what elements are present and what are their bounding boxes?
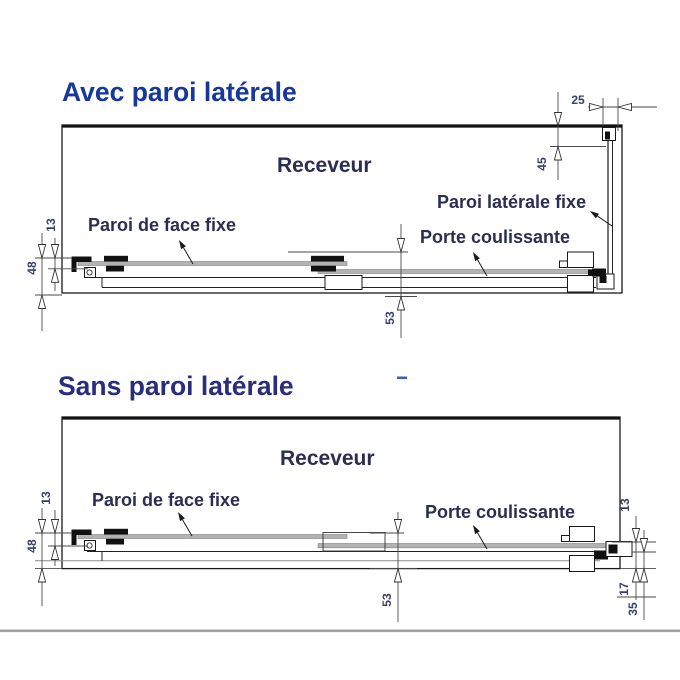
dim-wall-gap: 13: [44, 218, 58, 232]
tray-label: Receveur: [277, 154, 372, 177]
side-panel-label: Paroi latérale fixe: [437, 192, 586, 212]
front-panel-label: Paroi de face fixe: [92, 490, 240, 510]
dim-front-depth: 53: [380, 593, 394, 607]
page-root: Avec paroi latérale Receveur: [0, 0, 680, 680]
dim-side-inset: 45: [535, 157, 549, 171]
diagram-title-avec: Avec paroi latérale: [62, 77, 297, 107]
dim-wall-gap: 13: [39, 491, 53, 505]
dim-front-depth: 53: [383, 311, 397, 325]
dim-right-gap: 13: [618, 498, 632, 512]
diagram-title-sans: Sans paroi latérale: [58, 371, 294, 401]
tray-label: Receveur: [280, 447, 375, 470]
diagram-without-side-panel: Sans paroi latérale Receveur: [25, 371, 656, 622]
diagram-with-side-panel: Avec paroi latérale Receveur: [25, 77, 657, 338]
dim-right-inset: 17: [617, 582, 631, 596]
dim-side-offset: 25: [571, 93, 585, 107]
stray-dash: [397, 377, 407, 380]
front-panel-label: Paroi de face fixe: [88, 215, 236, 235]
technical-drawing: Avec paroi latérale Receveur: [0, 0, 680, 680]
dim-right-total: 35: [626, 602, 640, 616]
sliding-door-label: Porte coulissante: [420, 227, 570, 247]
sliding-door-label: Porte coulissante: [425, 502, 575, 522]
dim-wall-total: 48: [25, 539, 39, 553]
dim-wall-total: 48: [25, 261, 39, 275]
